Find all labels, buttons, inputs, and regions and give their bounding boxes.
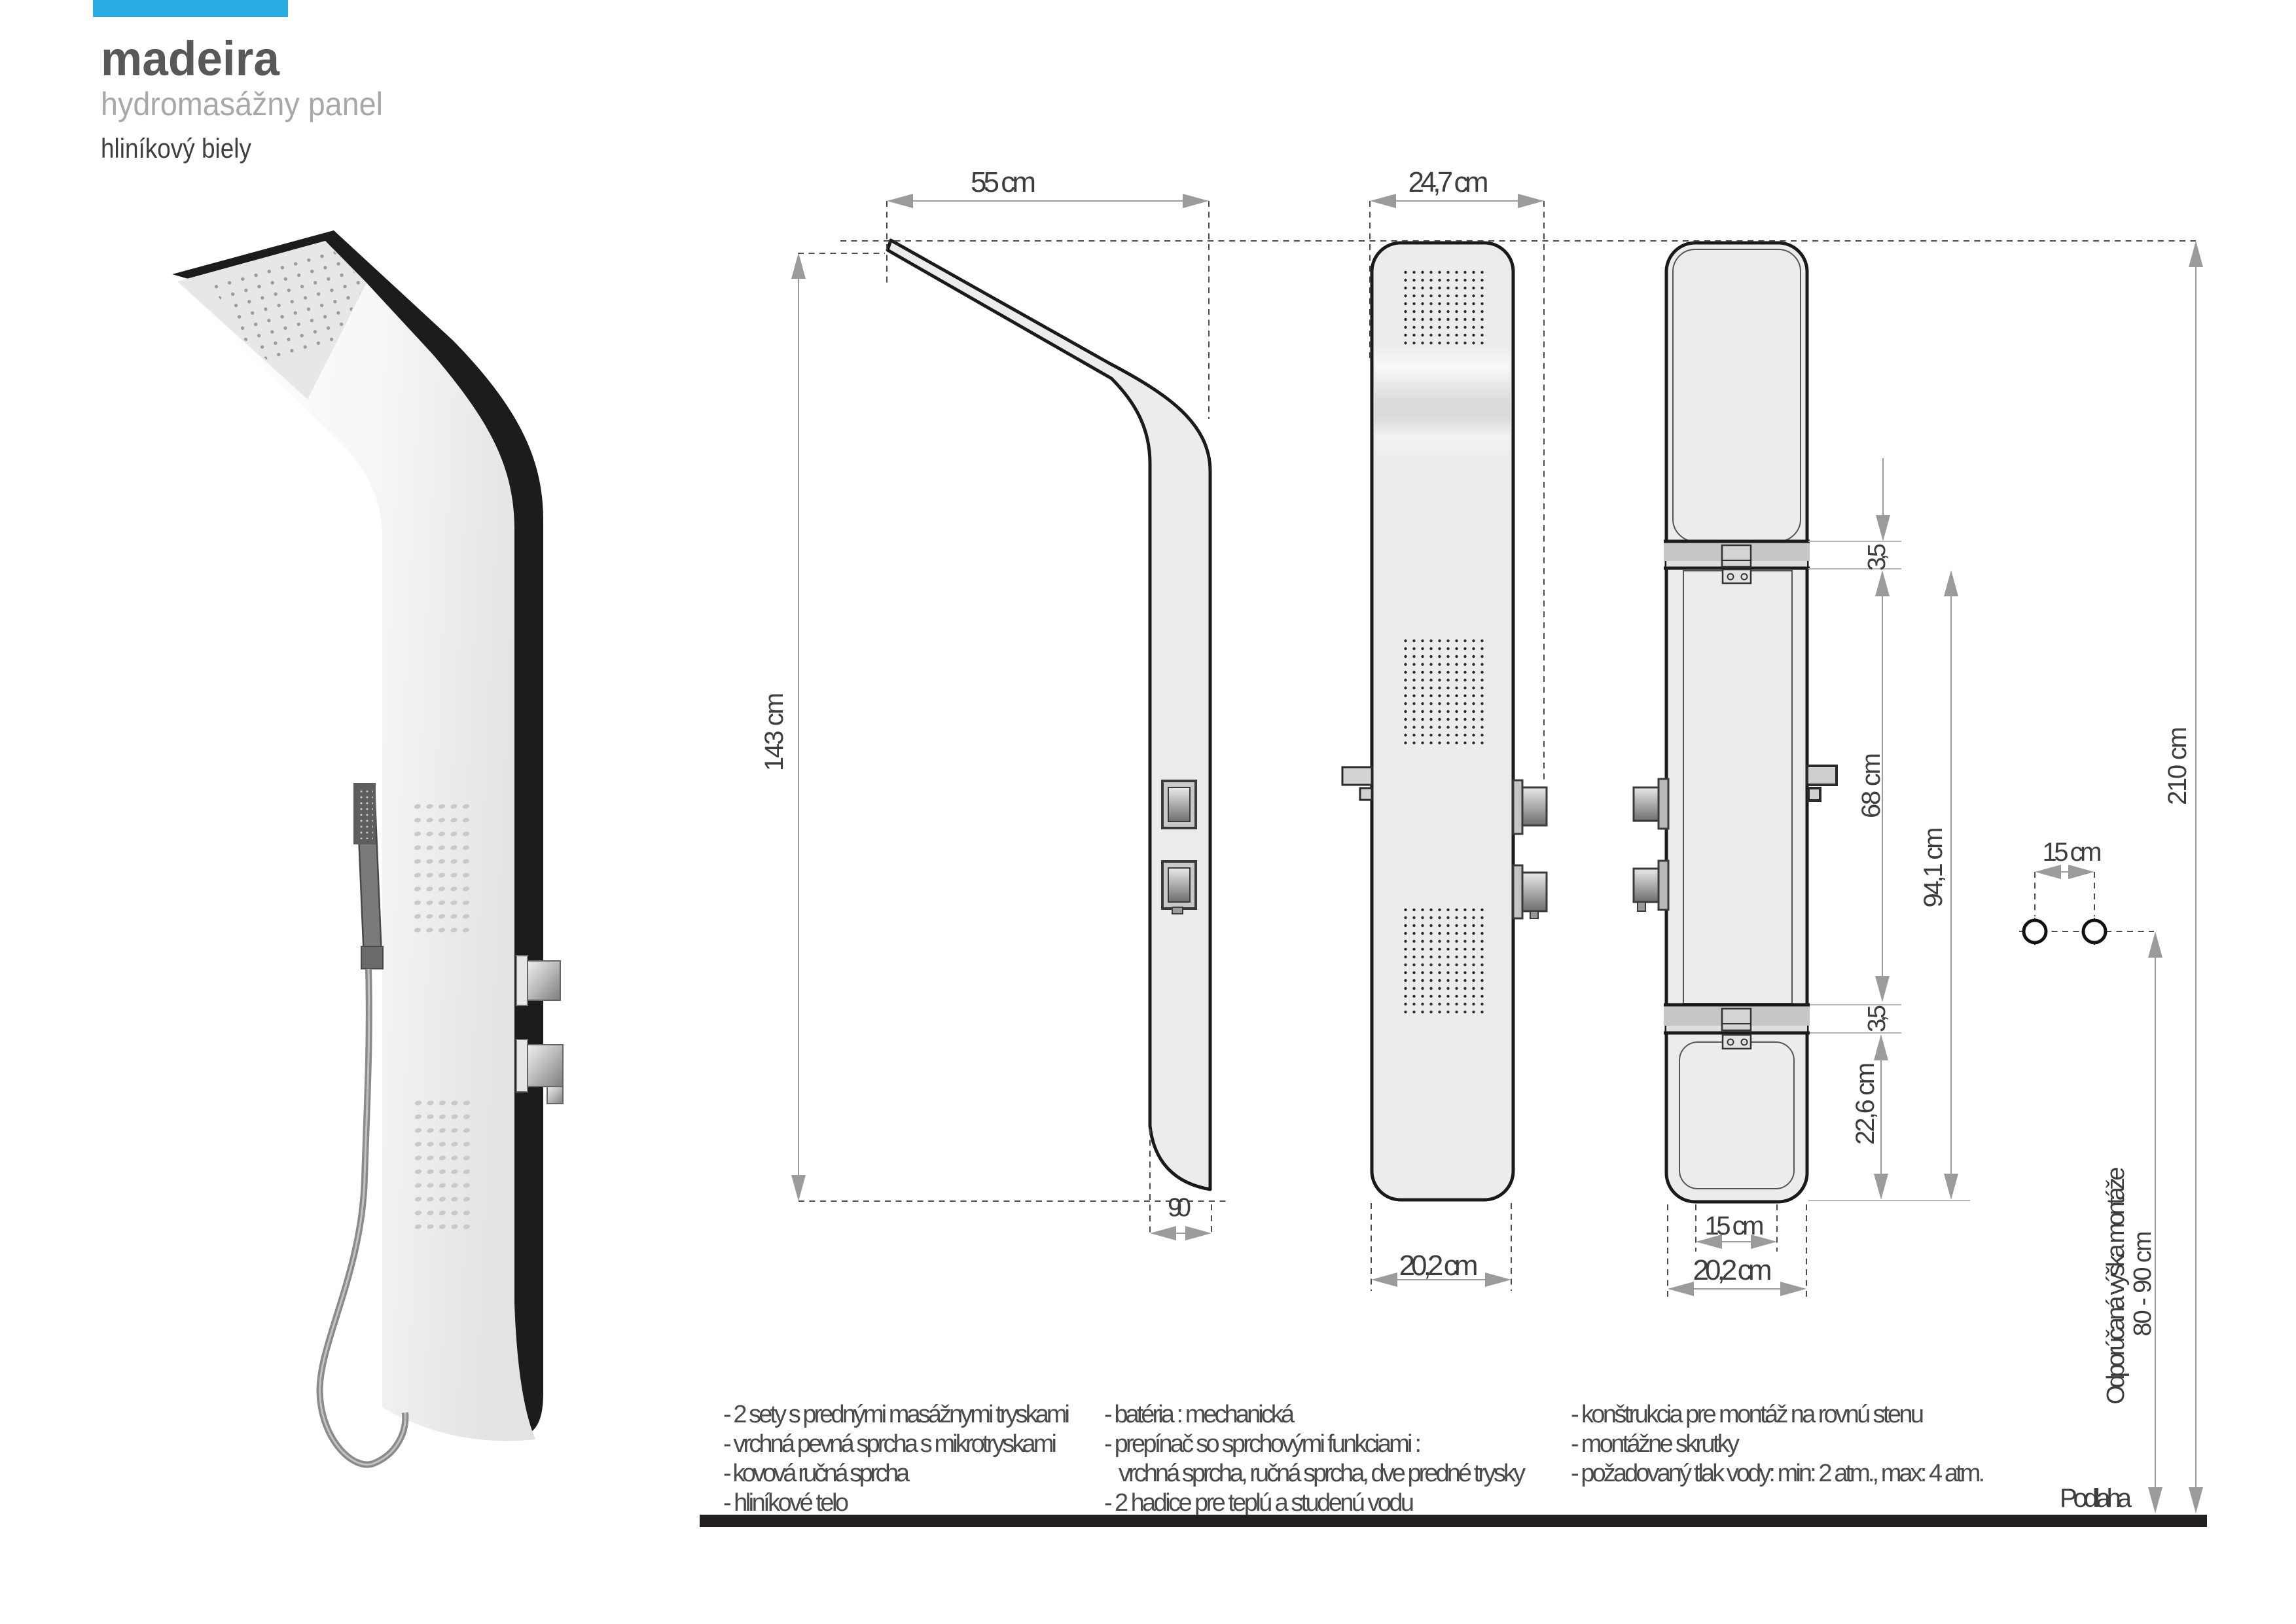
svg-text:hydromasážny panel: hydromasážny panel xyxy=(101,86,383,122)
svg-text:143 cm: 143 cm xyxy=(760,693,789,771)
svg-text:15 cm: 15 cm xyxy=(1705,1212,1765,1240)
svg-text:- hliníkové telo: - hliníkové telo xyxy=(723,1489,849,1517)
svg-text:hliníkový biely: hliníkový biely xyxy=(101,133,251,164)
svg-text:3,5: 3,5 xyxy=(1863,543,1891,571)
svg-text:- 2 hadice pre teplú a studenú: - 2 hadice pre teplú a studenú vodu xyxy=(1104,1489,1414,1517)
svg-text:68 cm: 68 cm xyxy=(1857,753,1886,818)
svg-text:210 cm: 210 cm xyxy=(2163,727,2192,805)
svg-text:- batéria : mechanická: - batéria : mechanická xyxy=(1104,1401,1295,1428)
svg-text:- konštrukcia pre montáž na ro: - konštrukcia pre montáž na rovnú stenu xyxy=(1571,1401,1924,1428)
svg-text:madeira: madeira xyxy=(101,31,280,86)
svg-text:- 2 sety s prednými masážnymi: - 2 sety s prednými masážnymi tryskami xyxy=(723,1401,1070,1428)
svg-text:20,2 cm: 20,2 cm xyxy=(1399,1250,1479,1282)
svg-text:80 - 90 cm: 80 - 90 cm xyxy=(2129,1231,2157,1337)
svg-text:- kovová ručná sprcha: - kovová ručná sprcha xyxy=(723,1460,910,1487)
svg-text:3,5: 3,5 xyxy=(1863,1005,1891,1032)
svg-text:- montážne skrutky: - montážne skrutky xyxy=(1571,1430,1740,1458)
svg-text:94,1 cm: 94,1 cm xyxy=(1919,827,1948,908)
svg-text:- vrchná pevná sprcha s mikrot: - vrchná pevná sprcha s mikrotryskami xyxy=(723,1430,1057,1458)
svg-text:22,6 cm: 22,6 cm xyxy=(1851,1062,1880,1145)
svg-text:24,7 cm: 24,7 cm xyxy=(1408,166,1489,198)
svg-text:90: 90 xyxy=(1168,1193,1191,1222)
svg-text:vrchná sprcha, ručná sprcha, d: vrchná sprcha, ručná sprcha, dve predné … xyxy=(1119,1460,1526,1487)
svg-text:15 cm: 15 cm xyxy=(2043,838,2102,867)
svg-text:20,2 cm: 20,2 cm xyxy=(1693,1254,1772,1286)
svg-text:- požadovaný tlak vody: min: 2: - požadovaný tlak vody: min: 2 atm., max… xyxy=(1571,1460,1985,1487)
svg-text:55 cm: 55 cm xyxy=(971,166,1036,198)
svg-text:Odporúčaná výška montáže: Odporúčaná výška montáže xyxy=(2102,1167,2130,1405)
svg-text:Podlaha: Podlaha xyxy=(2060,1484,2132,1513)
svg-text:- prepínač so sprchovými funkc: - prepínač so sprchovými funkciami : xyxy=(1104,1430,1422,1458)
